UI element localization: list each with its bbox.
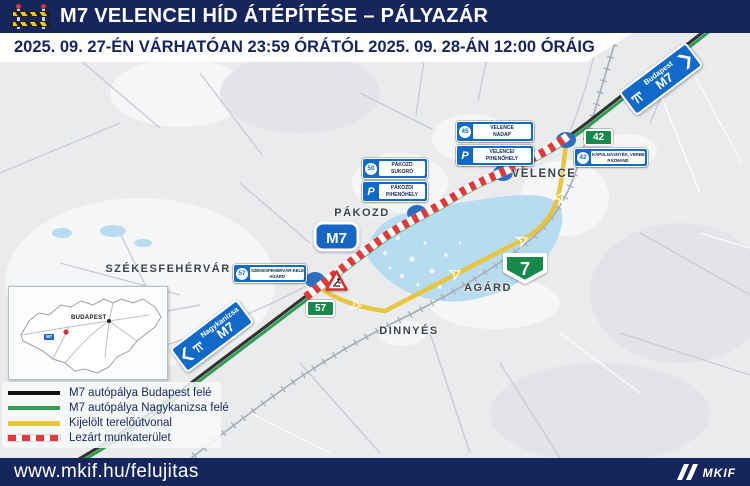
sign-line2: AGÁRD [251,274,303,280]
m7-shield-label: M7 [326,230,347,247]
page-title: M7 VELENCEI HÍD ÁTÉPÍTÉSE – PÁLYAZÁR [60,5,488,28]
roadworks-warning-icon [325,270,348,291]
sign-line1: SZÉKESFEHÉRVÁR-KELET [251,268,303,274]
inset-m7-tag: M7 [43,333,55,341]
town-label-dinnyes: DINNYÉS [379,325,438,337]
header-bar: M7 VELENCEI HÍD ÁTÉPÍTÉSE – PÁLYAZÁR [0,0,750,33]
sign-pakozd-sukoro: 50 PÁKOZD SUKORÓ [362,158,428,179]
sign-pakozdi-pihenohely: P PÁKOZDI PIHENŐHELY [362,181,428,202]
sign-line2: PÁZMÁND [592,158,644,164]
junction-45-icon: 45 [459,126,471,138]
map-area: 2025. 09. 27-ÉN VÁRHATÓAN 23:59 ÓRÁTÓL 2… [0,33,750,458]
sign-line2: PIHENŐHELY [380,192,424,199]
mkif-road-icon [676,464,700,480]
legend-item-closed-area: Lezárt munkaterület [8,432,215,444]
sign-velence-nadap: 45 VELENCE NADAP [456,121,534,142]
parking-icon: P [365,186,377,198]
junction-50-icon: 50 [365,163,377,175]
legend-item-nagykanizsa-direction: M7 autópálya Nagykanizsa felé [8,402,215,414]
parking-icon: P [459,150,471,162]
construction-barrier-icon [12,4,50,30]
m7-shield: M7 [313,221,360,252]
closure-period: 2025. 09. 27-ÉN VÁRHATÓAN 23:59 ÓRÁTÓL 2… [14,38,595,57]
road-7-shield: 7 [502,252,548,285]
sign-szekesfehervar-kelet: 57 SZÉKESFEHÉRVÁR-KELET AGÁRD [233,264,307,283]
legend-item-budapest-direction: M7 autópálya Budapest felé [8,387,215,399]
town-label-pakozd: PÁKOZD [334,207,389,219]
yellow-line-swatch [8,421,60,426]
sign-line2: SUKORÓ [380,169,424,176]
legend-item-detour: Kijelölt terelőútvonal [8,417,215,429]
hungary-inset-map: BUDAPEST M7 [8,286,168,380]
sign-kapolnasnyek: 42 KÁPOLNÁSNYÉK, VEREB, PÁZMÁND [574,148,648,167]
roadworks-map-poster: 2025. 09. 27-ÉN VÁRHATÓAN 23:59 ÓRÁTÓL 2… [0,0,750,486]
inset-budapest-label: BUDAPEST [71,315,106,321]
town-label-szekesfehervar: SZÉKESFEHÉRVÁR [105,263,230,275]
black-line-swatch [8,391,60,395]
exit-42-plate: 42 [584,129,613,146]
footer-bar: www.mkif.hu/felujitas MKIF [0,458,750,486]
legend-label: Lezárt munkaterület [69,432,171,444]
legend-label: M7 autópálya Budapest felé [69,387,212,399]
sign-velencei-pihenohely: P VELENCEI PIHENŐHELY [456,145,534,166]
road-57-plate: 57 [306,300,335,317]
hungary-outline [9,287,167,379]
legend-label: M7 autópálya Nagykanizsa felé [69,402,229,414]
town-label-velence: VELENCE [512,168,577,180]
budapest-dot [107,319,111,323]
red-dashed-swatch [8,435,60,441]
sign-line2: PIHENŐHELY [474,156,530,163]
legend: M7 autópálya Budapest felé M7 autópálya … [2,382,221,448]
legend-label: Kijelölt terelőútvonal [69,417,172,429]
mkif-logo-text: MKIF [703,466,736,480]
junction-57-icon: 57 [236,268,248,280]
website-url: www.mkif.hu/felujitas [14,461,199,483]
closure-location-dot [63,329,68,334]
green-line-swatch [8,406,60,410]
sign-line2: NADAP [474,132,530,139]
junction-42-icon: 42 [577,152,589,164]
road-7-shield-label: 7 [520,259,530,279]
mkif-logo: MKIF [676,464,736,480]
sign-line1: KÁPOLNÁSNYÉK, VEREB, [592,152,644,158]
